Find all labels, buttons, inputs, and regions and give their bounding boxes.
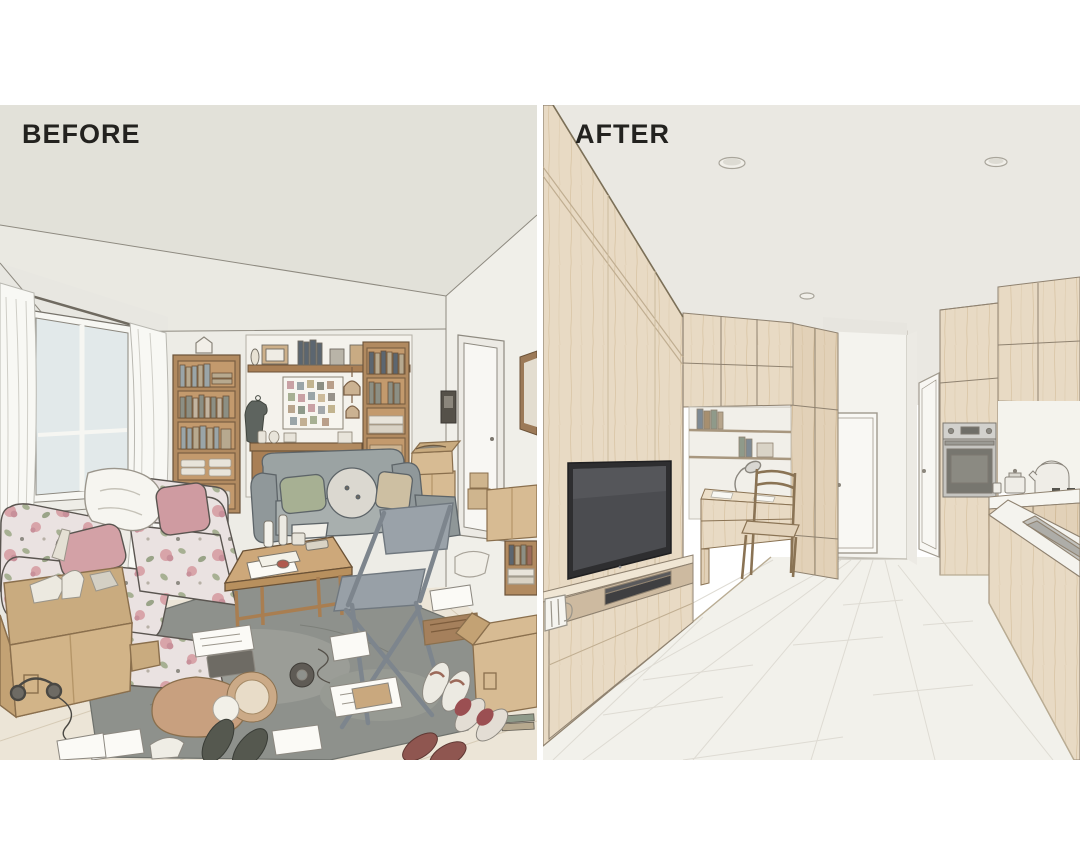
before-label: BEFORE [22,119,141,150]
after-scene [543,105,1080,760]
white-bag [455,551,489,577]
upper-cabinets [998,277,1080,403]
pot [1005,477,1025,493]
pillow-pink-1 [155,482,211,536]
canister [993,483,1001,493]
tv-logo [619,566,622,569]
box-flap [130,641,160,671]
door-knob [490,437,494,441]
desk-nook [683,313,793,585]
round-lid [213,696,239,722]
nook-upper-cabinets [683,313,793,407]
oven-handle [945,441,994,445]
memo-board [283,377,343,429]
oven [943,423,996,497]
before-after-illustration: BEFORE [0,0,1080,864]
panel-after: AFTER [543,105,1080,760]
pillow-round [327,468,377,518]
before-scene [0,105,537,760]
mini-bookshelf [505,541,537,595]
wardrobe-column [791,323,838,579]
hall-side-door [919,373,939,557]
pillow-sage [279,474,327,514]
hall-end-door [832,413,877,553]
pillow-cream [375,471,413,511]
after-label: AFTER [575,119,670,150]
panel-before: BEFORE [0,105,537,760]
